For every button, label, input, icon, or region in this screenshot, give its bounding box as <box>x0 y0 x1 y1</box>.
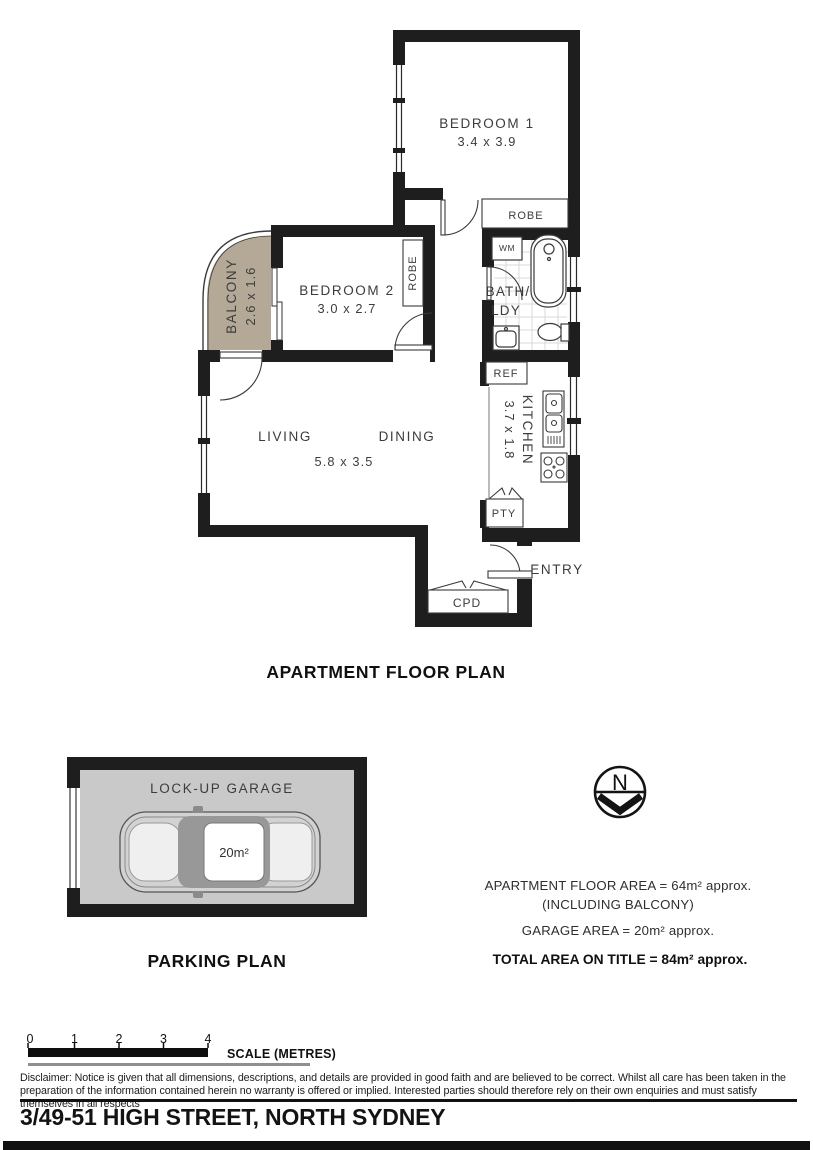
floor-plan-page: BEDROOM 1 3.4 x 3.9 ROBE WM BATH/ LDY RE… <box>0 0 813 1150</box>
total-area-text: TOTAL AREA ON TITLE = 84m² approx. <box>493 952 748 967</box>
kitchen-sink <box>543 391 564 447</box>
cpd-bifold <box>430 581 506 590</box>
balcony-floor <box>207 236 272 352</box>
car: 20m² <box>120 806 320 898</box>
toilet <box>538 324 569 342</box>
bottom-bar <box>3 1141 810 1150</box>
compass: N <box>595 767 645 817</box>
entry-label: ENTRY <box>530 562 584 577</box>
including-balcony-text: (INCLUDING BALCONY) <box>542 897 694 912</box>
scale-divider <box>28 1063 310 1066</box>
wm-label: WM <box>499 243 515 253</box>
stove <box>541 453 567 482</box>
pty-bifold <box>489 488 522 499</box>
garage-area-text: GARAGE AREA = 20m² approx. <box>522 923 714 938</box>
cpd-label: CPD <box>453 596 481 610</box>
bath-label-2: LDY <box>491 303 521 318</box>
garage-label: LOCK-UP GARAGE <box>150 781 294 796</box>
parking-plan: 20m² LOCK-UP GARAGE PARKING PLAN <box>67 757 367 971</box>
robe2-label: ROBE <box>407 255 419 290</box>
bedroom1-label: BEDROOM 1 <box>439 116 534 131</box>
bedroom1-dims: 3.4 x 3.9 <box>458 134 517 149</box>
basin <box>493 326 519 350</box>
ref-label: REF <box>494 368 519 380</box>
area-summary: APARTMENT FLOOR AREA = 64m² approx. (INC… <box>485 878 752 967</box>
bedroom2-label: BEDROOM 2 <box>299 283 394 298</box>
kitchen-fixtures <box>541 391 567 482</box>
garage-door-opening <box>67 788 80 888</box>
living-dining-dims: 5.8 x 3.5 <box>315 454 374 469</box>
balcony-dims: 2.6 x 1.6 <box>243 267 258 326</box>
north-label: N <box>612 770 628 795</box>
scale-caption: SCALE (METRES) <box>227 1047 336 1061</box>
apartment-plan: BEDROOM 1 3.4 x 3.9 ROBE WM BATH/ LDY RE… <box>198 30 584 682</box>
kitchen-dims: 3.7 x 1.8 <box>502 401 517 460</box>
bedroom1-door <box>441 200 478 235</box>
bedroom2-dims: 3.0 x 2.7 <box>318 301 377 316</box>
scale-bar: 0 1 2 3 4 SCALE (METRES) <box>27 1032 337 1066</box>
garage-area-label: 20m² <box>219 845 249 860</box>
balcony-label: BALCONY <box>224 258 239 334</box>
bath-label-1: BATH/ <box>486 284 531 299</box>
apartment-area-text: APARTMENT FLOOR AREA = 64m² approx. <box>485 878 752 893</box>
kitchen-label: KITCHEN <box>520 395 535 465</box>
pty-label: PTY <box>492 508 516 520</box>
address-rule <box>20 1099 797 1102</box>
apartment-plan-title: APARTMENT FLOOR PLAN <box>266 662 505 682</box>
parking-plan-title: PARKING PLAN <box>147 951 286 971</box>
living-label: LIVING <box>258 429 312 444</box>
plan-drawing: BEDROOM 1 3.4 x 3.9 ROBE WM BATH/ LDY RE… <box>0 0 813 1150</box>
dining-label: DINING <box>379 429 436 444</box>
bathtub <box>531 235 566 307</box>
address: 3/49-51 HIGH STREET, NORTH SYDNEY <box>20 1104 445 1131</box>
robe1-label: ROBE <box>508 210 543 222</box>
